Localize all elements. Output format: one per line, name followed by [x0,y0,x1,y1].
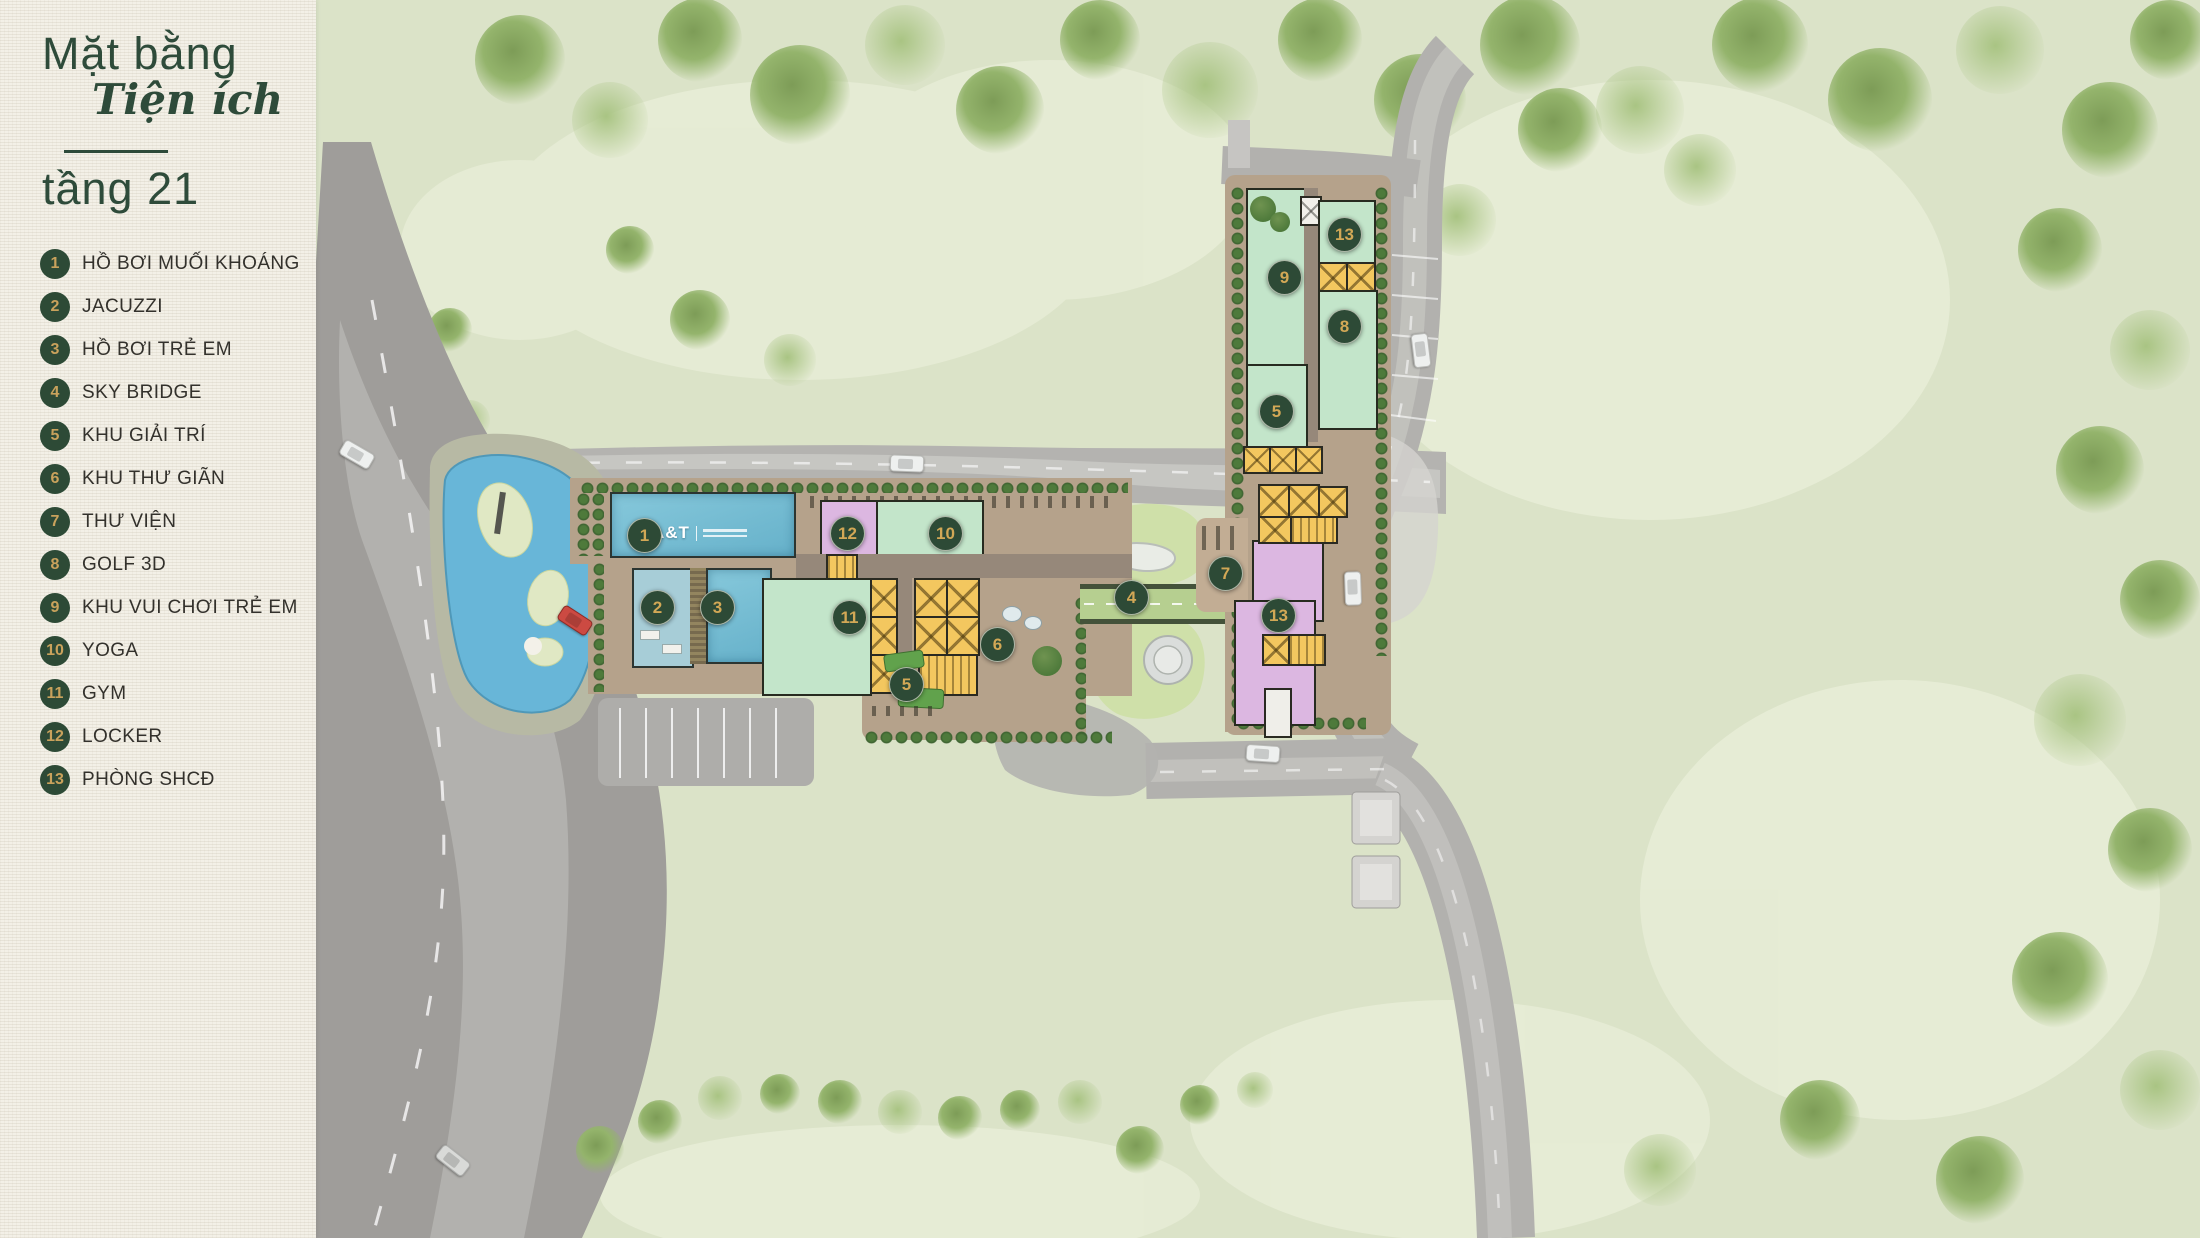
legend-number-badge: 5 [40,421,70,451]
plan-marker-5: 5 [889,667,924,702]
stair-by-locker [826,554,858,580]
logo-subtext-lines [703,529,747,537]
elevator-shaft [1243,446,1271,474]
legend-label: HỒ BƠI TRẺ EM [82,339,232,361]
plan-marker-6: 6 [980,627,1015,662]
legend-label: KHU THƯ GIÃN [82,468,225,490]
elevator-shaft [1258,484,1290,518]
legend-item-1: 1HỒ BƠI MUỐI KHOÁNG [40,249,310,279]
elevator-shaft [946,578,980,618]
legend-label: GOLF 3D [82,554,166,576]
legend-label: SKY BRIDGE [82,382,202,404]
elevator-shaft [1295,446,1323,474]
legend-number-badge: 8 [40,550,70,580]
elevator-shaft [914,578,948,618]
legend-item-6: 6KHU THƯ GIÃN [40,464,310,494]
legend-item-11: 11GYM [40,679,310,709]
plan-marker-5: 5 [1259,394,1294,429]
elevator-shaft [1269,446,1297,474]
legend-item-12: 12LOCKER [40,722,310,752]
plan-marker-4: 4 [1114,580,1149,615]
legend-item-9: 9KHU VUI CHƠI TRẺ EM [40,593,310,623]
elevator-shaft [1288,484,1320,518]
plan-marker-9: 9 [1267,260,1302,295]
legend-number-badge: 7 [40,507,70,537]
legend-number-badge: 3 [40,335,70,365]
legend-item-7: 7THƯ VIỆN [40,507,310,537]
legend-number-badge: 13 [40,765,70,795]
floor-label: tầng 21 [42,163,199,215]
elevator-shaft [1262,634,1290,666]
elevator-shaft [1258,516,1292,544]
car [890,454,925,472]
elevator-shaft [946,616,980,656]
terrace-furniture [872,706,932,716]
legend-label: GYM [82,683,126,705]
legend-number-badge: 6 [40,464,70,494]
playground-tree [1270,212,1290,232]
legend-number-badge: 10 [40,636,70,666]
legend-label: PHÒNG SHCĐ [82,769,215,791]
legend-item-5: 5KHU GIẢI TRÍ [40,421,310,451]
plan-marker-2: 2 [640,590,675,625]
legend-item-10: 10YOGA [40,636,310,666]
relax-spa-tub [1024,616,1042,630]
developer-logo: A&T [652,520,782,546]
page-title: Mặt bằng [42,30,302,77]
legend-item-13: 13PHÒNG SHCĐ [40,765,310,795]
legend-label: KHU GIẢI TRÍ [82,425,206,447]
legend-item-3: 3HỒ BƠI TRẺ EM [40,335,310,365]
plan-marker-3: 3 [700,590,735,625]
page-subtitle: Tiện ích [92,79,302,121]
car [1245,744,1280,763]
plan-marker-8: 8 [1327,309,1362,344]
legend-number-badge: 12 [40,722,70,752]
plan-marker-13: 13 [1327,217,1362,252]
relax-spa-tub [1002,606,1022,622]
jacuzzi-lounger [640,630,660,640]
plan-marker-11: 11 [832,600,867,635]
stair-core [1288,634,1326,666]
plan-marker-7: 7 [1208,556,1243,591]
jacuzzi-lounger [662,644,682,654]
legend-list: 1HỒ BƠI MUỐI KHOÁNG2JACUZZI3HỒ BƠI TRẺ E… [40,249,310,808]
stair-core [1290,516,1338,544]
plan-marker-12: 12 [830,516,865,551]
legend-label: JACUZZI [82,296,163,318]
car [1344,571,1362,606]
lobby [1264,688,1292,738]
plan-marker-1: 1 [627,518,662,553]
info-panel: Mặt bằng Tiện ích tầng 21 1HỒ BƠI MUỐI K… [0,0,316,1238]
round-planter [1032,646,1062,676]
elevator-shaft [870,616,898,656]
room-gym [762,578,872,696]
legend-number-badge: 2 [40,292,70,322]
legend-number-badge: 1 [40,249,70,279]
plan-marker-10: 10 [928,516,963,551]
legend-label: YOGA [82,640,139,662]
legend-number-badge: 11 [40,679,70,709]
legend-number-badge: 9 [40,593,70,623]
legend-label: HỒ BƠI MUỐI KHOÁNG [82,253,300,275]
legend-label: THƯ VIỆN [82,511,176,533]
title-divider [64,150,168,153]
elevator-shaft [1318,486,1348,518]
site-plan: A&T [0,0,2200,1238]
legend-item-8: 8GOLF 3D [40,550,310,580]
logo-divider [696,526,698,541]
elevator-shaft [870,578,898,618]
legend-number-badge: 4 [40,378,70,408]
plan-marker-13: 13 [1261,598,1296,633]
legend-label: KHU VUI CHƠI TRẺ EM [82,597,298,619]
legend-item-2: 2JACUZZI [40,292,310,322]
legend-label: LOCKER [82,726,163,748]
legend-item-4: 4SKY BRIDGE [40,378,310,408]
podium-northwest-planting [576,492,604,556]
title-block: Mặt bằng Tiện ích [42,30,302,121]
podium-west-planting [592,562,604,692]
library-furniture [1202,526,1242,550]
